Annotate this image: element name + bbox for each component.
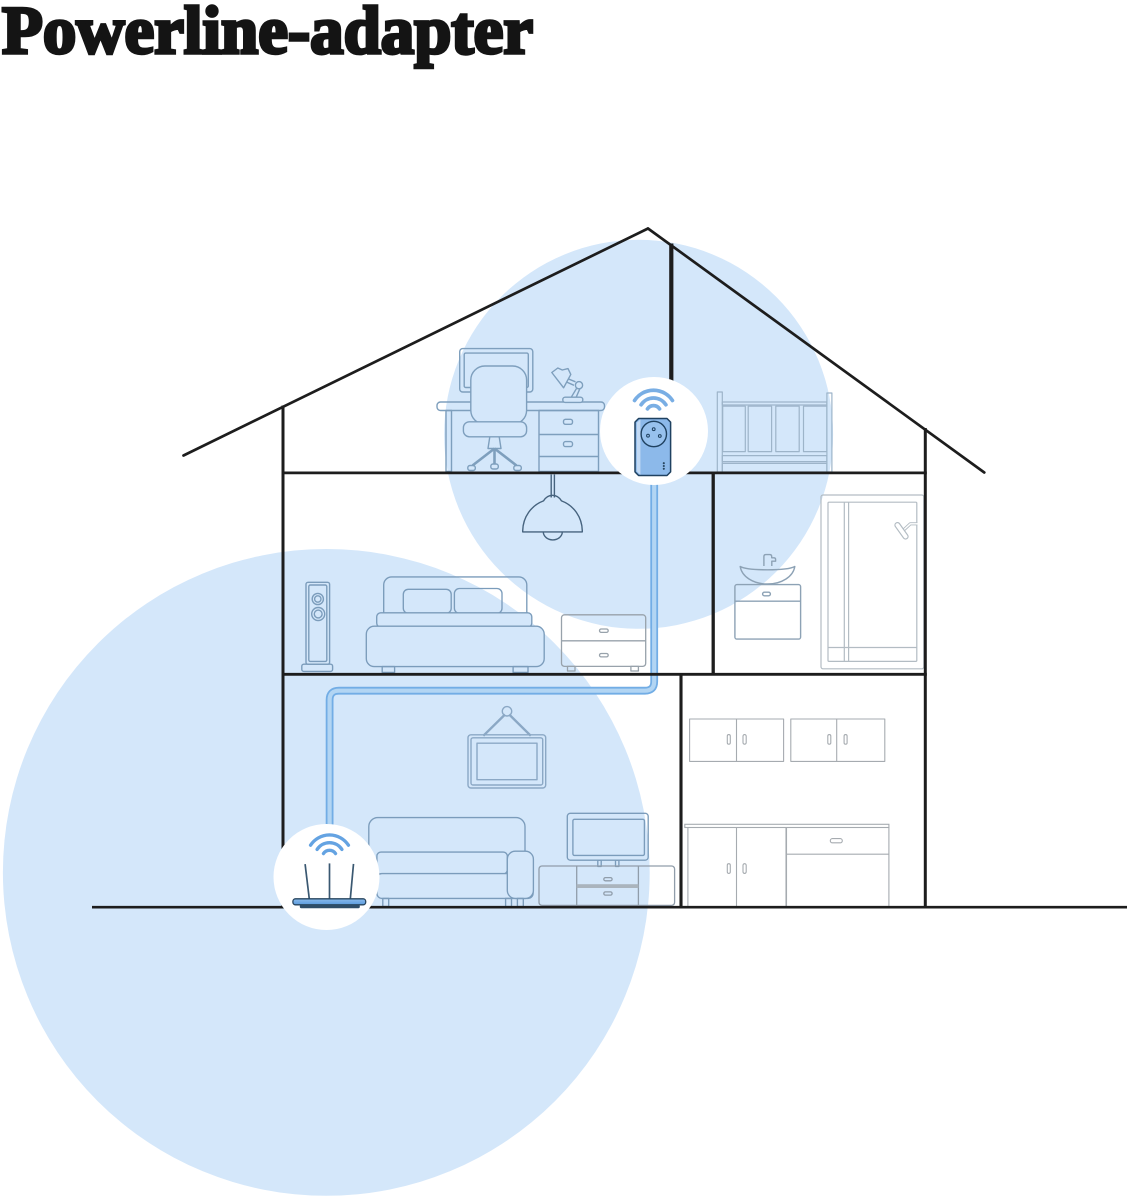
svg-text:Powerline-adapter: Powerline-adapter <box>2 0 533 68</box>
